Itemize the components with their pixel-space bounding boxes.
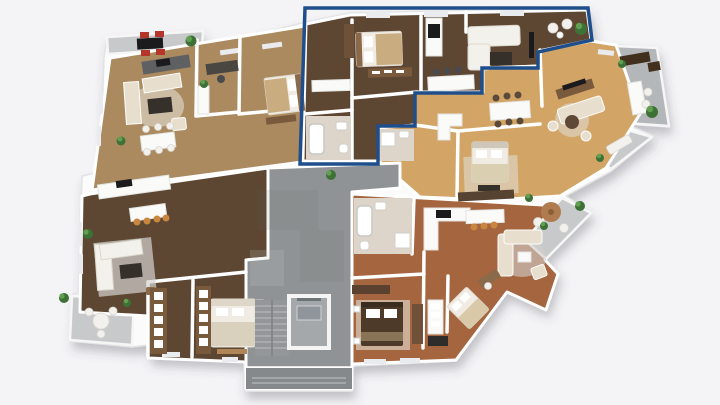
bed-bench (478, 185, 500, 191)
oven (428, 24, 440, 38)
bed-dark (361, 302, 403, 346)
dining-table (489, 101, 530, 121)
red-chair (141, 50, 150, 56)
balcony-table-center (548, 209, 554, 215)
wardrobe (344, 24, 354, 58)
dresser (368, 67, 412, 78)
floor-plan-canvas (0, 0, 720, 405)
sofa (124, 81, 142, 124)
clothes-rack (428, 300, 443, 334)
staircase (255, 300, 289, 356)
hall-closet (312, 79, 350, 91)
stool (433, 69, 440, 76)
sink (399, 131, 409, 138)
stool (481, 223, 488, 230)
desk (428, 336, 448, 346)
coffee-table (119, 263, 142, 279)
sink (336, 122, 347, 130)
window (424, 11, 448, 17)
plant (59, 293, 69, 303)
bed (472, 142, 508, 182)
toilet (360, 241, 369, 250)
stool (163, 215, 170, 222)
chair (506, 119, 513, 126)
nightstand (354, 338, 360, 344)
plant (117, 137, 126, 146)
stool (491, 222, 498, 229)
balcony-chair (562, 19, 572, 29)
window (78, 222, 82, 246)
stool (471, 224, 478, 231)
chair (515, 92, 522, 99)
window (222, 357, 238, 362)
armchair (548, 121, 558, 131)
stool (144, 218, 151, 225)
chair (560, 224, 569, 233)
coffee-table (490, 52, 512, 65)
stool (154, 216, 161, 223)
coffee-table (565, 115, 579, 129)
balcony-table (557, 32, 563, 38)
concrete-patch (250, 250, 284, 286)
cooktop (436, 210, 451, 218)
coffee-table (518, 252, 531, 262)
red-chair (140, 32, 149, 38)
shower (395, 233, 410, 248)
corner-sofa (504, 230, 542, 244)
office-chair (217, 75, 225, 83)
stool (134, 219, 141, 226)
concrete-patch (300, 230, 344, 282)
floor-plan-stage (0, 0, 720, 405)
sofa-chaise (468, 44, 490, 70)
coffee-table (147, 97, 172, 114)
stool (444, 68, 451, 75)
bed (211, 299, 255, 354)
chair (143, 126, 150, 133)
window (364, 359, 386, 364)
plant (186, 36, 197, 47)
plant (326, 170, 336, 180)
kitchen-island (428, 75, 475, 91)
balcony-chair (548, 23, 558, 33)
plant (83, 229, 93, 239)
window (99, 92, 103, 114)
wardrobe-rack (196, 286, 211, 354)
chair (493, 95, 500, 102)
window (500, 10, 524, 16)
kitchen-island (466, 209, 504, 223)
nightstand (354, 306, 360, 312)
plant (575, 201, 585, 211)
chair (109, 307, 117, 315)
chair (156, 147, 163, 154)
sink (375, 202, 386, 210)
window (79, 254, 83, 274)
armchair (581, 131, 591, 141)
closet-shelf (198, 86, 209, 114)
elevator (289, 296, 329, 348)
chair (167, 123, 174, 130)
chair (97, 330, 105, 338)
outdoor-table (93, 313, 109, 329)
chair (485, 283, 492, 290)
chair (144, 149, 151, 156)
chair (155, 124, 162, 131)
bathtub (309, 124, 324, 154)
shower (381, 132, 395, 146)
chair (168, 145, 175, 152)
chair (495, 121, 502, 128)
bed (355, 31, 402, 67)
concrete-patch (258, 190, 318, 230)
chair (504, 93, 511, 100)
window (366, 12, 390, 18)
red-chair (155, 31, 164, 37)
wardrobe (352, 285, 390, 294)
red-chair (156, 49, 165, 55)
stool (455, 67, 462, 74)
chair (85, 308, 93, 316)
chair (517, 118, 524, 125)
bathtub (357, 206, 372, 236)
armchair (171, 117, 186, 130)
window (97, 126, 101, 146)
wardrobe-rack (150, 288, 167, 354)
toilet (339, 144, 348, 153)
tv (529, 32, 534, 58)
window (400, 358, 420, 363)
bed (264, 74, 305, 115)
shelf-unit (412, 304, 423, 344)
outdoor-table (137, 37, 164, 49)
